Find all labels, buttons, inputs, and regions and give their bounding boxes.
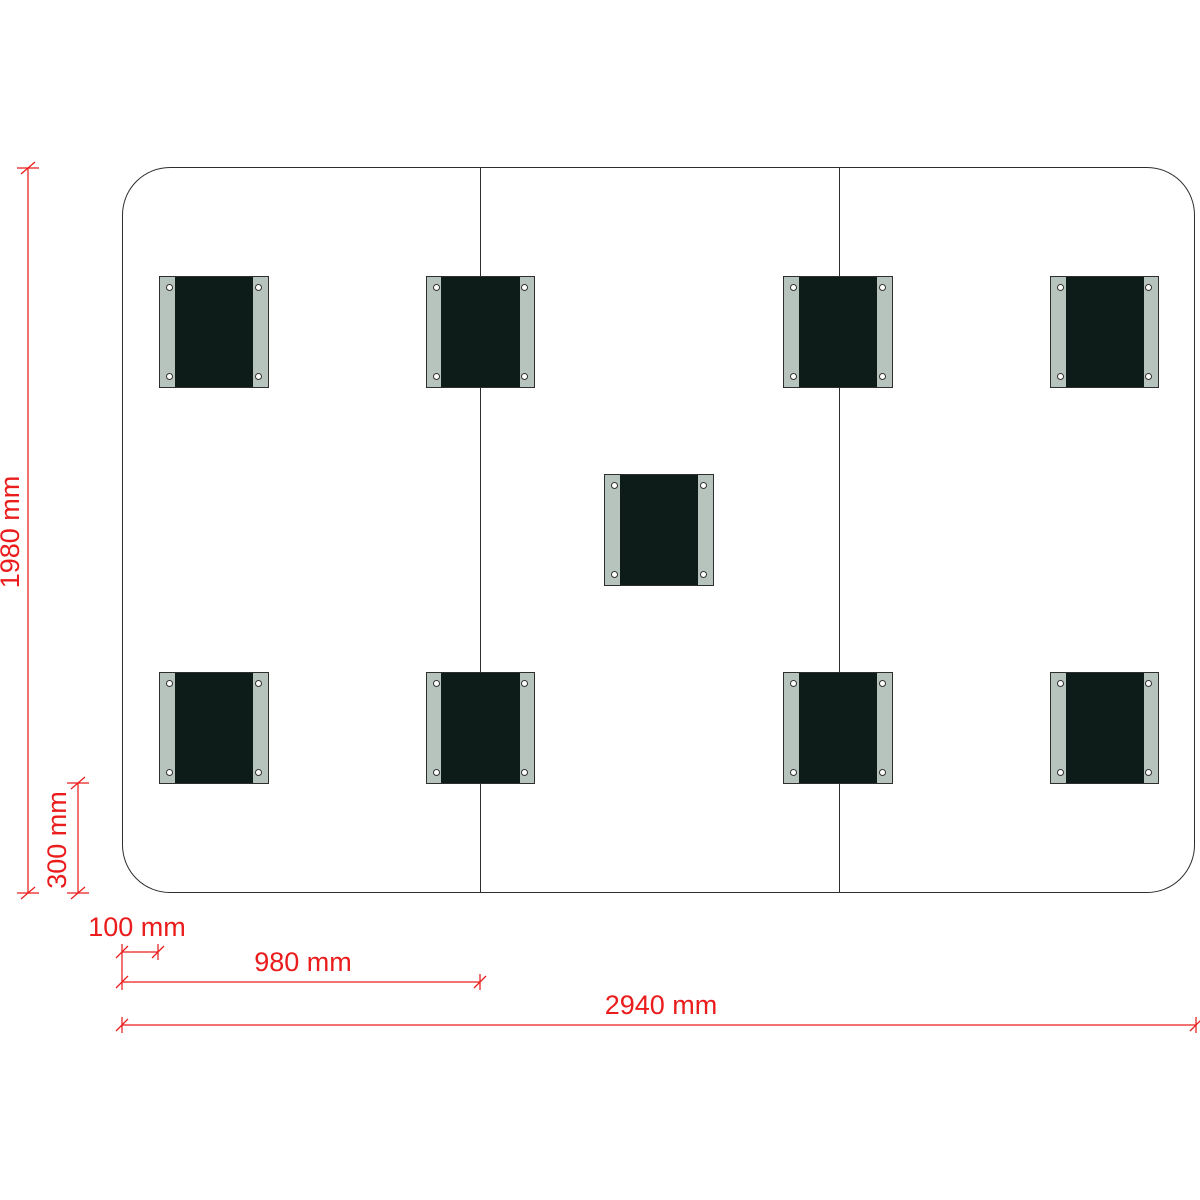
dim-section-width-label: 980 mm xyxy=(254,947,352,977)
dim-edge-offset-label: 100 mm xyxy=(88,912,186,942)
dim-total-width-label: 2940 mm xyxy=(605,990,718,1020)
diagram-canvas: 1980 mm 300 mm 100 mm 980 mm xyxy=(0,0,1200,1200)
dim-height-label: 1980 mm xyxy=(0,476,25,589)
dimension-layer: 1980 mm 300 mm 100 mm 980 mm xyxy=(0,0,1200,1200)
dim-bottom-offset-label: 300 mm xyxy=(42,791,72,889)
dim-edge-offset-line xyxy=(116,944,164,974)
